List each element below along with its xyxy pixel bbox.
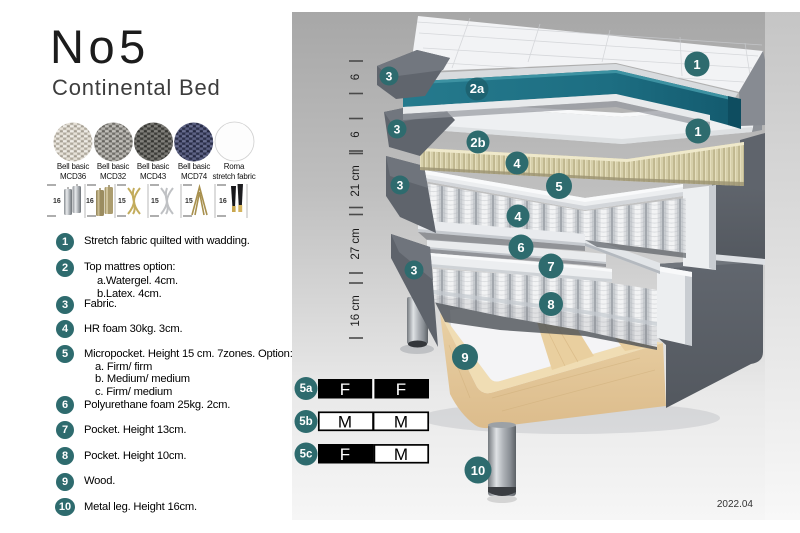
- svg-text:8: 8: [547, 297, 554, 312]
- svg-text:27 cm: 27 cm: [350, 228, 362, 259]
- svg-text:5: 5: [555, 179, 562, 194]
- svg-text:4: 4: [513, 156, 521, 171]
- svg-text:10: 10: [471, 463, 485, 478]
- svg-text:6: 6: [517, 240, 524, 255]
- svg-text:3: 3: [394, 123, 401, 137]
- svg-text:M: M: [394, 445, 408, 464]
- svg-text:M: M: [338, 413, 352, 432]
- svg-text:2b: 2b: [470, 135, 485, 150]
- svg-text:6: 6: [350, 74, 362, 80]
- svg-text:5c: 5c: [300, 449, 313, 461]
- svg-text:6: 6: [350, 131, 362, 137]
- svg-text:3: 3: [386, 70, 393, 84]
- svg-text:21 cm: 21 cm: [350, 165, 362, 196]
- svg-text:2a: 2a: [470, 81, 485, 96]
- svg-text:16 cm: 16 cm: [350, 295, 362, 326]
- svg-text:1: 1: [694, 124, 701, 139]
- svg-text:M: M: [394, 413, 408, 432]
- svg-text:2022.04: 2022.04: [717, 499, 754, 510]
- svg-text:9: 9: [461, 350, 468, 365]
- svg-text:4: 4: [514, 209, 522, 224]
- svg-text:7: 7: [547, 259, 554, 274]
- svg-text:1: 1: [693, 57, 700, 72]
- svg-text:5b: 5b: [299, 416, 312, 428]
- svg-text:5a: 5a: [300, 383, 313, 395]
- svg-text:F: F: [340, 445, 350, 464]
- svg-text:F: F: [340, 380, 350, 399]
- svg-text:3: 3: [411, 264, 418, 278]
- svg-text:3: 3: [397, 179, 404, 193]
- svg-text:F: F: [396, 380, 406, 399]
